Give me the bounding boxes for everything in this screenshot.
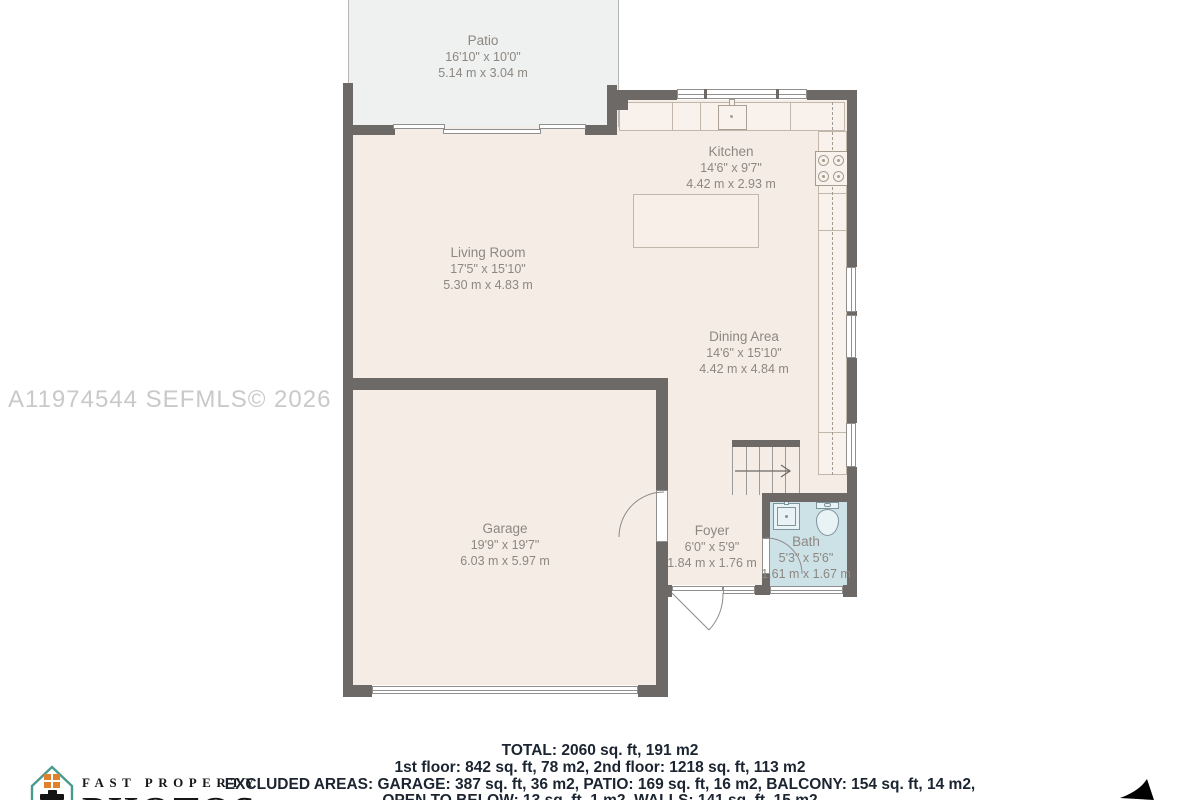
room-label-kitchen: Kitchen 14'6" x 9'7" 4.42 m x 2.93 m (686, 144, 776, 192)
room-label-patio: Patio 16'10" x 10'0" 5.14 m x 3.04 m (438, 33, 528, 81)
logo-window-pane (44, 774, 51, 780)
wall (656, 540, 668, 697)
room-label-foyer: Foyer 6'0" x 5'9" 1.84 m x 1.76 m (667, 523, 757, 571)
room-label-dining-area: Dining Area 14'6" x 15'10" 4.42 m x 4.84… (699, 329, 789, 377)
wall (847, 358, 857, 423)
dining-window (846, 315, 856, 358)
room-dim-metric: 1.84 m x 1.76 m (667, 556, 757, 572)
front-door-threshold (672, 586, 723, 591)
front-door-leaf-line (672, 593, 709, 630)
room-dim-imperial: 14'6" x 9'7" (686, 161, 776, 177)
stair-tread (785, 447, 786, 495)
counter-divider (700, 102, 701, 131)
bath-sink-drain (785, 515, 788, 518)
wall (607, 85, 617, 135)
kitchen-sink-drain (730, 115, 733, 118)
room-dim-metric: 6.03 m x 5.97 m (460, 554, 550, 570)
wall (628, 90, 677, 100)
wall (762, 493, 847, 502)
room-dim-imperial: 17'5" x 15'10" (443, 262, 533, 278)
logo-window-pane (53, 782, 60, 788)
room-name: Dining Area (699, 329, 789, 345)
staircase (732, 447, 800, 495)
room-dim-imperial: 6'0" x 5'9" (667, 540, 757, 556)
wall (662, 585, 672, 597)
room-name: Living Room (443, 245, 533, 261)
stove-burner (818, 155, 829, 166)
room-dim-metric: 1.61 m x 1.67 m (761, 567, 851, 583)
front-door-swing-arc (709, 593, 723, 630)
kitchen-sink-faucet (729, 99, 735, 106)
sliding-door-panel (393, 124, 445, 129)
foyer-window (723, 586, 755, 594)
window-mullion (776, 89, 779, 99)
toilet-flush-button (824, 503, 831, 507)
room-dim-imperial: 14'6" x 15'10" (699, 346, 789, 362)
kitchen-island (633, 194, 759, 248)
room-dim-imperial: 5'3" x 5'6" (761, 551, 851, 567)
counter-divider (790, 102, 791, 131)
mls-watermark: A11974544 SEFMLS© 2026 (8, 386, 331, 414)
stair-tread (746, 447, 747, 495)
room-label-living-room: Living Room 17'5" x 15'10" 5.30 m x 4.83… (443, 245, 533, 293)
room-dim-imperial: 19'9" x 19'7" (460, 538, 550, 554)
wall (843, 585, 857, 597)
wall (343, 390, 353, 697)
fast-property-photos-house-icon (24, 763, 80, 800)
summary-floors: 1st floor: 842 sq. ft, 78 m2, 2nd floor:… (0, 760, 1200, 776)
room-dim-imperial: 16'10" x 10'0" (438, 50, 528, 66)
wall (762, 502, 770, 538)
wall (343, 685, 372, 697)
room-dim-metric: 4.42 m x 4.84 m (699, 362, 789, 378)
room-name: Kitchen (686, 144, 776, 160)
wall (807, 90, 857, 100)
summary-total: TOTAL: 2060 sq. ft, 191 m2 (0, 743, 1200, 759)
room-dim-metric: 5.30 m x 4.83 m (443, 278, 533, 294)
room-dim-metric: 5.14 m x 3.04 m (438, 66, 528, 82)
room-dim-metric: 4.42 m x 2.93 m (686, 177, 776, 193)
sliding-door-panel (539, 124, 586, 129)
dining-window (846, 267, 856, 312)
garage-floor-area (353, 585, 656, 685)
garage-door (372, 686, 638, 694)
room-name: Patio (438, 33, 528, 49)
counter-divider (672, 102, 673, 131)
stair-top-rail (732, 440, 800, 447)
wall (656, 390, 668, 490)
wall (343, 378, 668, 390)
dining-window (846, 423, 856, 467)
room-label-bath: Bath 5'3" x 5'6" 1.61 m x 1.67 m (761, 534, 851, 582)
room-name: Foyer (667, 523, 757, 539)
logo-camera-body (40, 794, 64, 800)
stove-burner (833, 155, 844, 166)
logo-window-pane (53, 774, 60, 780)
logo-window-pane (44, 782, 51, 788)
room-name: Bath (761, 534, 851, 550)
sliding-door-panel (443, 129, 541, 134)
room-label-garage: Garage 19'9" x 19'7" 6.03 m x 5.97 m (460, 521, 550, 569)
stair-tread (759, 447, 760, 495)
wall (617, 90, 628, 110)
stove-burner (833, 171, 844, 182)
stove-burner (818, 171, 829, 182)
floor-plan-image: Patio 16'10" x 10'0" 5.14 m x 3.04 m Kit… (0, 0, 1200, 800)
wall (847, 100, 857, 267)
room-name: Garage (460, 521, 550, 537)
window-mullion (704, 89, 707, 99)
wall (343, 125, 395, 135)
kitchen-window (677, 89, 807, 99)
wall (755, 585, 770, 595)
garage-entry-door-leaf (656, 490, 668, 542)
stair-tread (772, 447, 773, 495)
bath-window (770, 586, 843, 594)
logo-text-photos: PHOTOS (82, 789, 258, 800)
